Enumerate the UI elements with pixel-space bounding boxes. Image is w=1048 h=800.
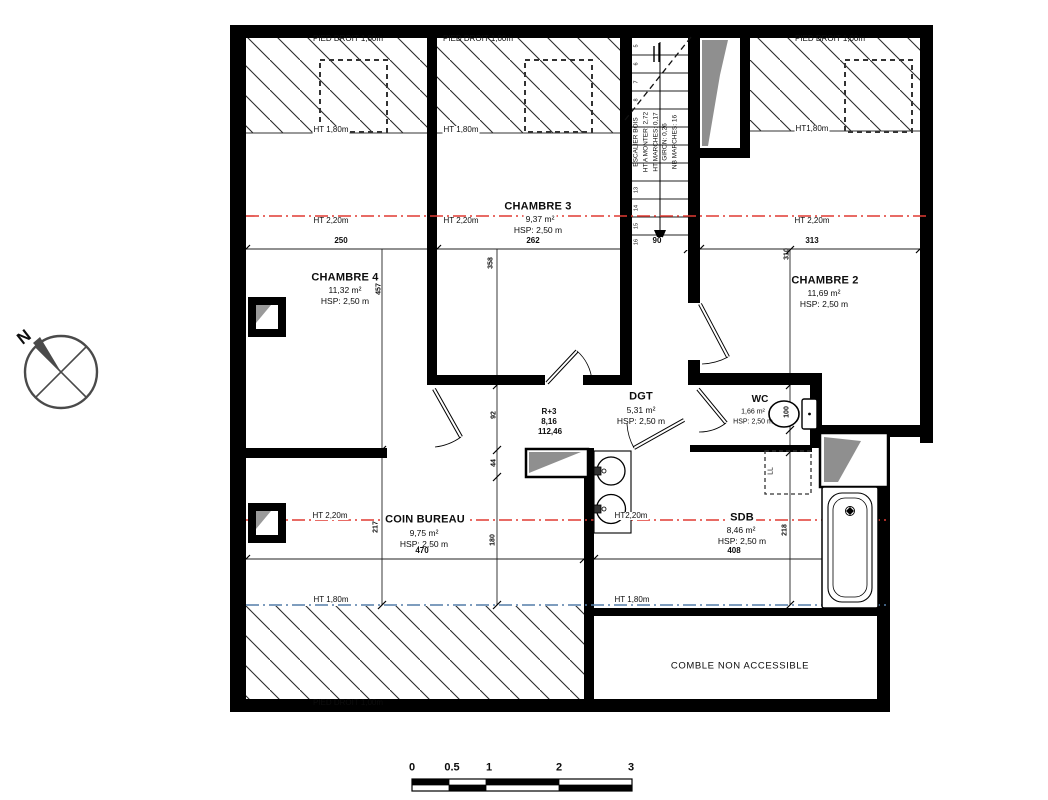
sloped-wedges xyxy=(526,433,888,487)
ht180-label-left: HT 1,80m xyxy=(313,126,350,134)
floor-plan-canvas: PIED DROIT 1,00m PIED DROIT 1,00m PIED D… xyxy=(0,0,1048,800)
basin-icons xyxy=(594,451,631,533)
scale-tick-3: 3 xyxy=(628,763,634,774)
ht180-label-right: HT1,80m xyxy=(795,125,830,133)
scale-tick-05: 0.5 xyxy=(444,763,459,774)
dim-250: 250 xyxy=(333,237,348,245)
level-marker-altitude: 8,16 xyxy=(541,418,557,426)
dim-218: 218 xyxy=(782,524,789,536)
stair-step-number: 7 xyxy=(634,80,640,83)
dim-217: 217 xyxy=(373,521,380,533)
room-title-comble: COMBLE NON ACCESSIBLE xyxy=(671,661,809,671)
room-title-chambre4: CHAMBRE 4 xyxy=(311,273,378,284)
dim-262: 262 xyxy=(525,237,540,245)
stairs-nb-marches: NB MARCHES: 16 xyxy=(671,94,681,190)
dim-44: 44 xyxy=(491,459,498,467)
toilet-icon xyxy=(769,399,817,429)
north-arrow-icon xyxy=(25,336,97,408)
bathtub-icon xyxy=(822,487,878,608)
stairs-annotation: ESCALIER BOIS HT A MONTER: 2,72 HT MARCH… xyxy=(632,94,681,190)
room-hsp-coin-bureau: HSP: 2,50 m xyxy=(400,540,448,549)
scale-tick-0: 0 xyxy=(409,763,415,774)
room-title-chambre3: CHAMBRE 3 xyxy=(504,202,571,213)
room-area-wc: 1,66 m² xyxy=(741,409,765,416)
ht180-label-mid: HT 1,80m xyxy=(443,126,480,134)
room-title-wc: WC xyxy=(752,395,769,405)
level-marker-total-area: 112,46 xyxy=(538,428,562,436)
level-marker-level: R+3 xyxy=(542,408,557,416)
room-hsp-sdb: HSP: 2,50 m xyxy=(718,537,766,546)
pied-droit-label-top-mid: PIED DROIT 1,00m xyxy=(443,35,513,43)
stair-step-number: 13 xyxy=(634,187,640,193)
room-area-chambre2: 11,69 m² xyxy=(808,289,841,298)
pied-droit-label-bottom: PIED DROIT 1,00m xyxy=(313,699,383,707)
pied-droit-label-top-left: PIED DROIT 1,00m xyxy=(313,35,383,43)
stair-step-number: 8 xyxy=(634,98,640,101)
room-hsp-wc: HSP: 2,50 m xyxy=(733,419,773,426)
pied-droit-label-top-right: PIED DROIT 1,00m xyxy=(795,35,865,43)
room-hsp-chambre4: HSP: 2,50 m xyxy=(321,297,369,306)
stair-step-number: 6 xyxy=(634,62,640,65)
stair-step-number: 14 xyxy=(634,205,640,211)
room-area-chambre3: 9,37 m² xyxy=(524,215,557,224)
scale-bar xyxy=(412,779,632,791)
stair-step-number: 16 xyxy=(634,239,640,245)
dim-100: 100 xyxy=(784,406,791,418)
roof-window-icons xyxy=(248,297,286,543)
room-area-sdb: 8,46 m² xyxy=(727,526,756,535)
ht220-label-mid: HT 2,20m xyxy=(443,217,480,225)
dim-90: 90 xyxy=(652,237,663,245)
flue-shading xyxy=(700,38,740,148)
room-area-dgt: 5,31 m² xyxy=(627,406,656,415)
stair-step-number: 5 xyxy=(634,44,640,47)
ht180-label-lower-mid: HT 1,80m xyxy=(614,596,651,604)
scale-tick-2: 2 xyxy=(556,763,562,774)
stairs-label: ESCALIER BOIS xyxy=(632,94,642,190)
stairs-ht-marches: HT MARCHES: 0,17 xyxy=(651,94,661,190)
ht220-label-left: HT 2,20m xyxy=(313,217,350,225)
dim-457: 457 xyxy=(376,283,383,295)
room-title-coin-bureau: COIN BUREAU xyxy=(383,515,467,526)
stairs-giron: GIRON: 0,26 xyxy=(661,94,671,190)
dim-358: 358 xyxy=(488,257,495,269)
room-title-dgt: DGT xyxy=(629,392,653,403)
ht180-label-lower-left: HT 1,80m xyxy=(313,596,350,604)
dim-310: 310 xyxy=(784,248,791,260)
scale-tick-1: 1 xyxy=(486,763,492,774)
room-hsp-chambre3: HSP: 2,50 m xyxy=(514,226,562,235)
dim-408: 408 xyxy=(726,547,741,555)
ht220-label-lower-mid: HT2,20m xyxy=(614,512,649,520)
room-area-coin-bureau: 9,75 m² xyxy=(410,529,439,538)
stairs-ht-a-monter: HT A MONTER: 2,72 xyxy=(641,94,651,190)
room-title-chambre2: CHAMBRE 2 xyxy=(791,276,858,287)
ht220-label-lower-left: HT 2,20m xyxy=(312,512,349,520)
room-title-sdb: SDB xyxy=(728,513,756,524)
dim-313: 313 xyxy=(804,237,819,245)
dim-180: 180 xyxy=(490,534,497,546)
washing-machine-label: LL xyxy=(768,467,775,475)
plan-linework xyxy=(0,0,1048,800)
room-area-chambre4: 11,32 m² xyxy=(329,286,362,295)
stair-step-number: 15 xyxy=(634,223,640,229)
ht220-label-right: HT 2,20m xyxy=(794,217,831,225)
room-hsp-dgt: HSP: 2,50 m xyxy=(617,417,665,426)
room-hsp-chambre2: HSP: 2,50 m xyxy=(800,300,848,309)
dim-92: 92 xyxy=(491,411,498,419)
